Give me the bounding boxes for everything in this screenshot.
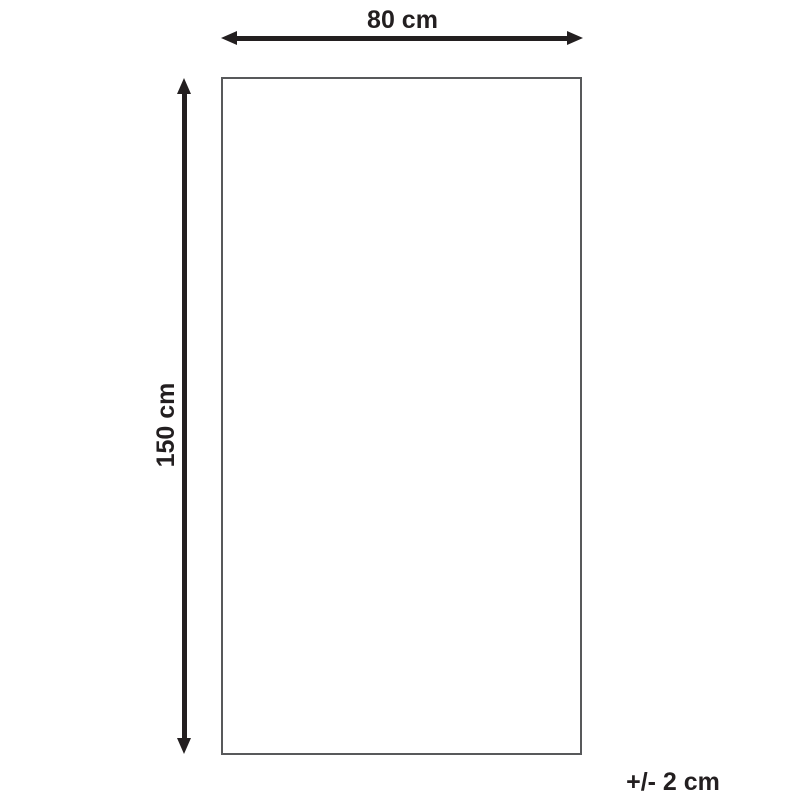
- arrowhead-up-icon: [177, 78, 191, 94]
- dimension-diagram: 80 cm 150 cm +/- 2 cm: [0, 0, 800, 800]
- width-dimension-arrow: [221, 31, 583, 45]
- arrowhead-down-icon: [177, 738, 191, 754]
- height-arrow-line: [182, 94, 187, 738]
- arrowhead-left-icon: [221, 31, 237, 45]
- product-outline-rectangle: [221, 77, 582, 755]
- width-arrow-line: [237, 36, 567, 41]
- tolerance-label: +/- 2 cm: [583, 768, 763, 797]
- height-dimension-arrow: [177, 78, 191, 754]
- arrowhead-right-icon: [567, 31, 583, 45]
